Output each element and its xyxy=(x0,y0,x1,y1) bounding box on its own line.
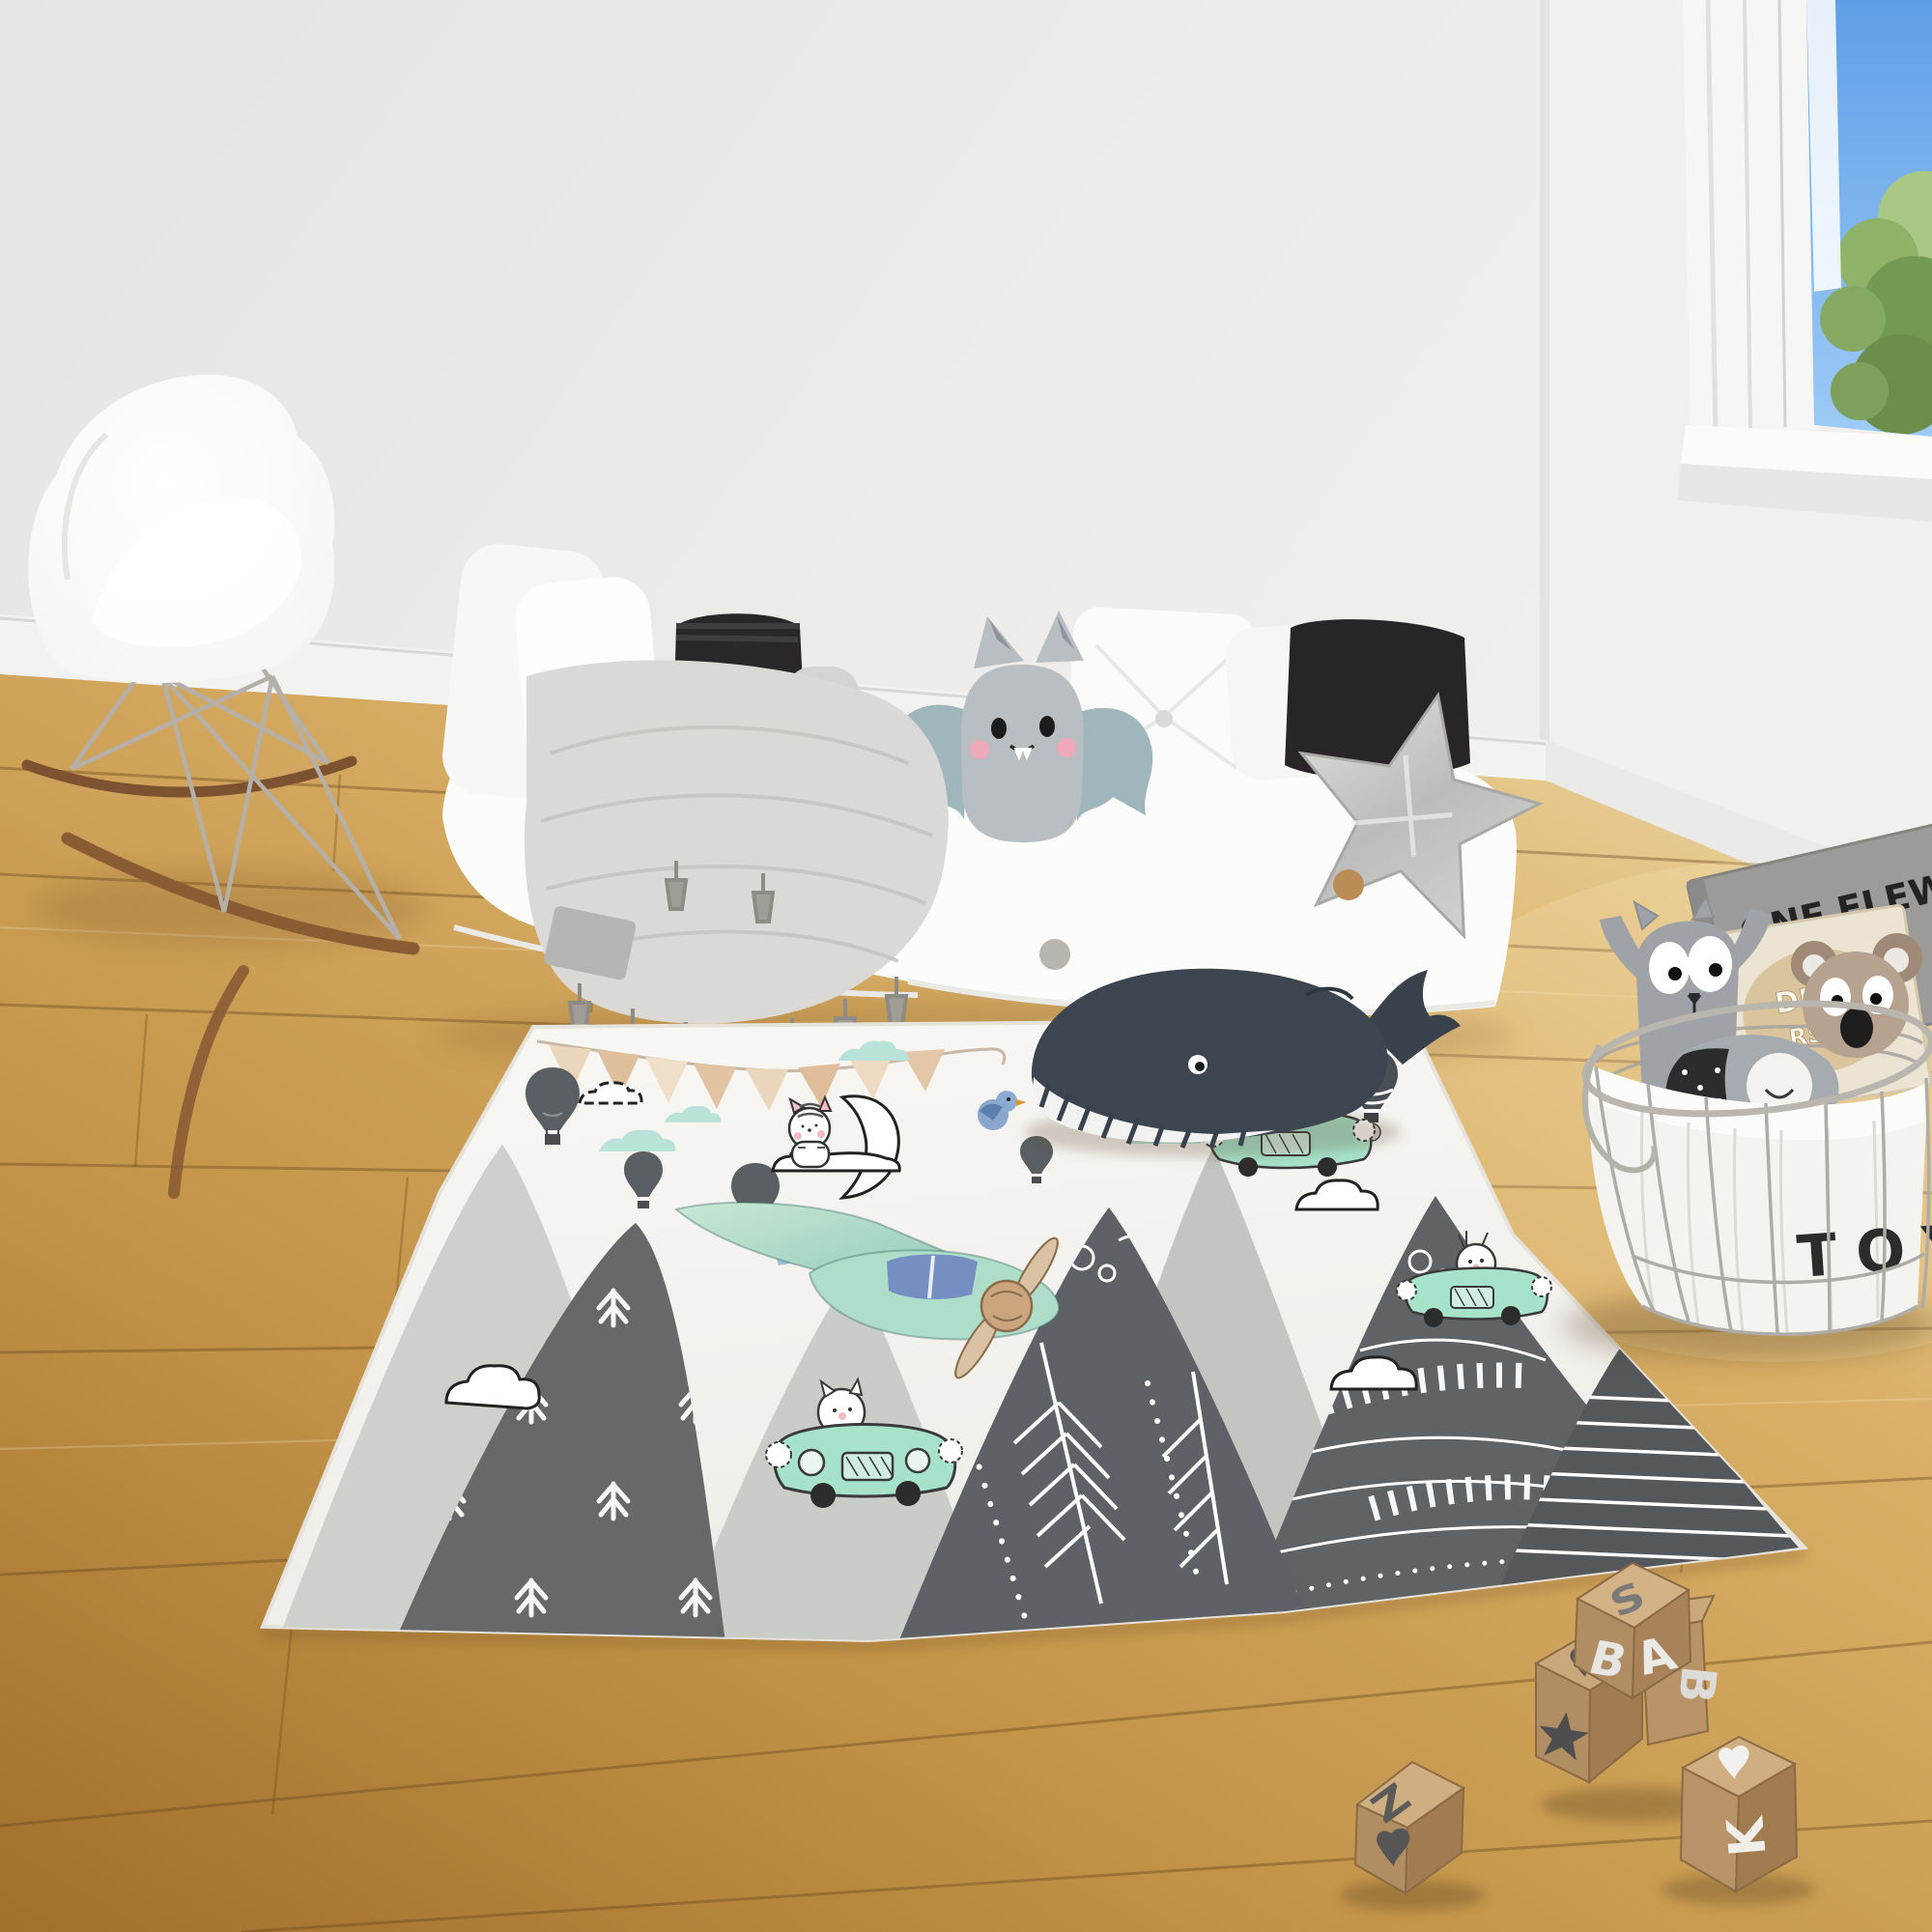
wood-button xyxy=(1333,869,1364,900)
wall-corner xyxy=(1540,0,1549,782)
koala-nose xyxy=(1840,1008,1873,1048)
moon-cat xyxy=(789,1097,831,1167)
window xyxy=(1677,0,1932,522)
propeller-hub xyxy=(981,1281,1032,1331)
kids-room-photo: ONE FLEW THE DRED RS OF xyxy=(0,0,1932,1932)
block-k-letter: K xyxy=(1717,1813,1777,1859)
basket-label: TOY xyxy=(1795,1211,1932,1292)
room-scene: ONE FLEW THE DRED RS OF xyxy=(0,0,1932,1932)
